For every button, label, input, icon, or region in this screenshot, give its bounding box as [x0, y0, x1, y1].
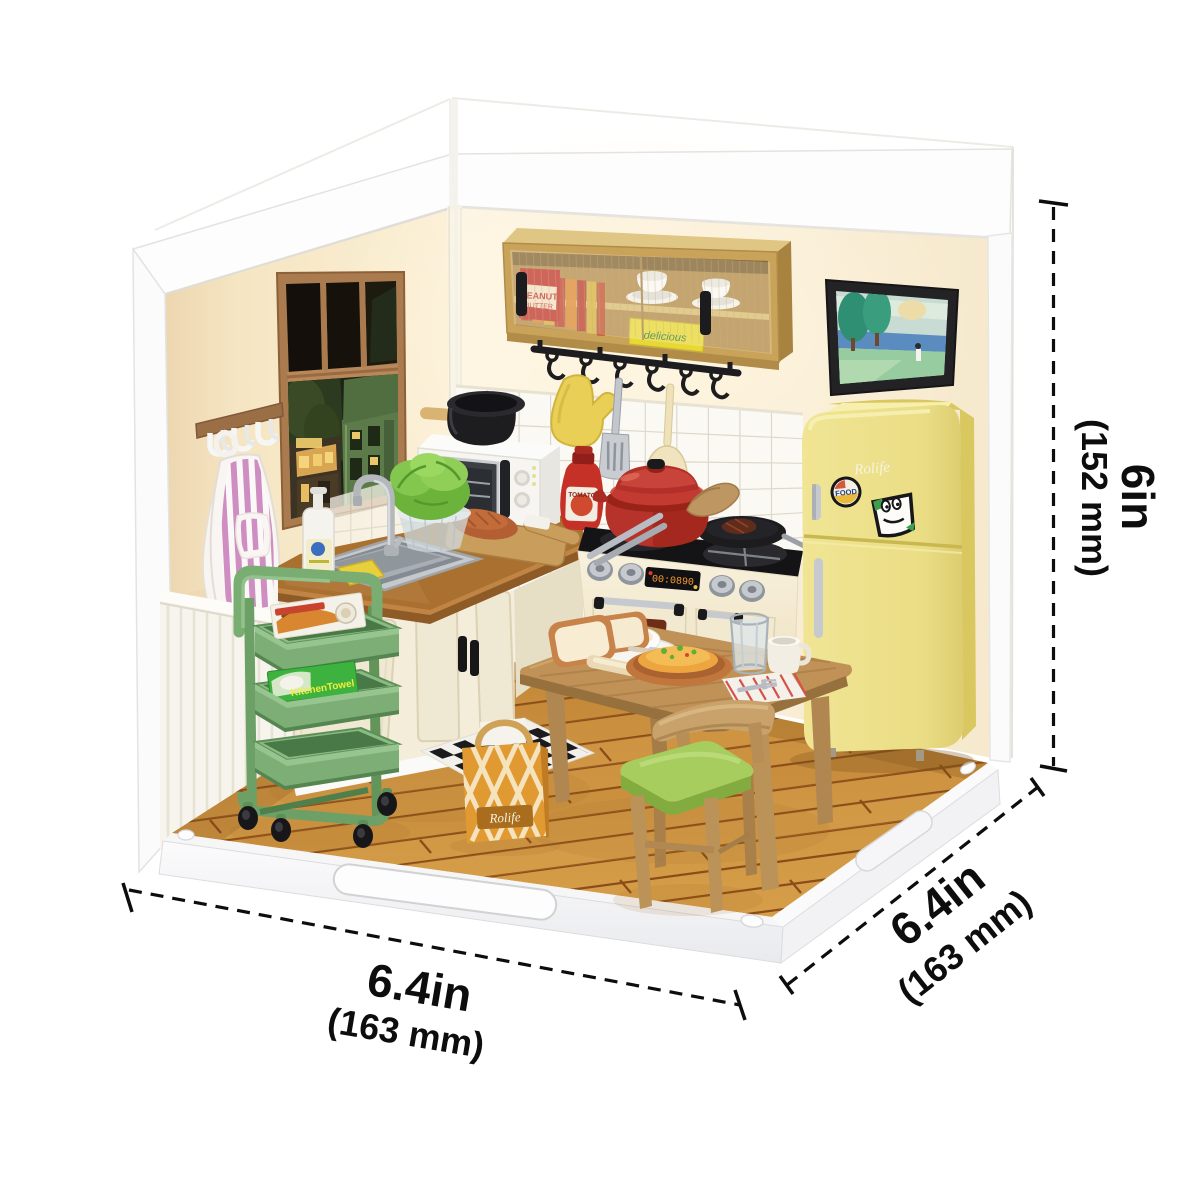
svg-text:(152 mm): (152 mm) — [1074, 419, 1115, 577]
svg-text:Rolife: Rolife — [853, 459, 891, 478]
svg-text:6in: 6in — [1112, 464, 1164, 530]
svg-text:TOMATO: TOMATO — [568, 492, 596, 500]
svg-text:Rolife: Rolife — [488, 809, 521, 826]
